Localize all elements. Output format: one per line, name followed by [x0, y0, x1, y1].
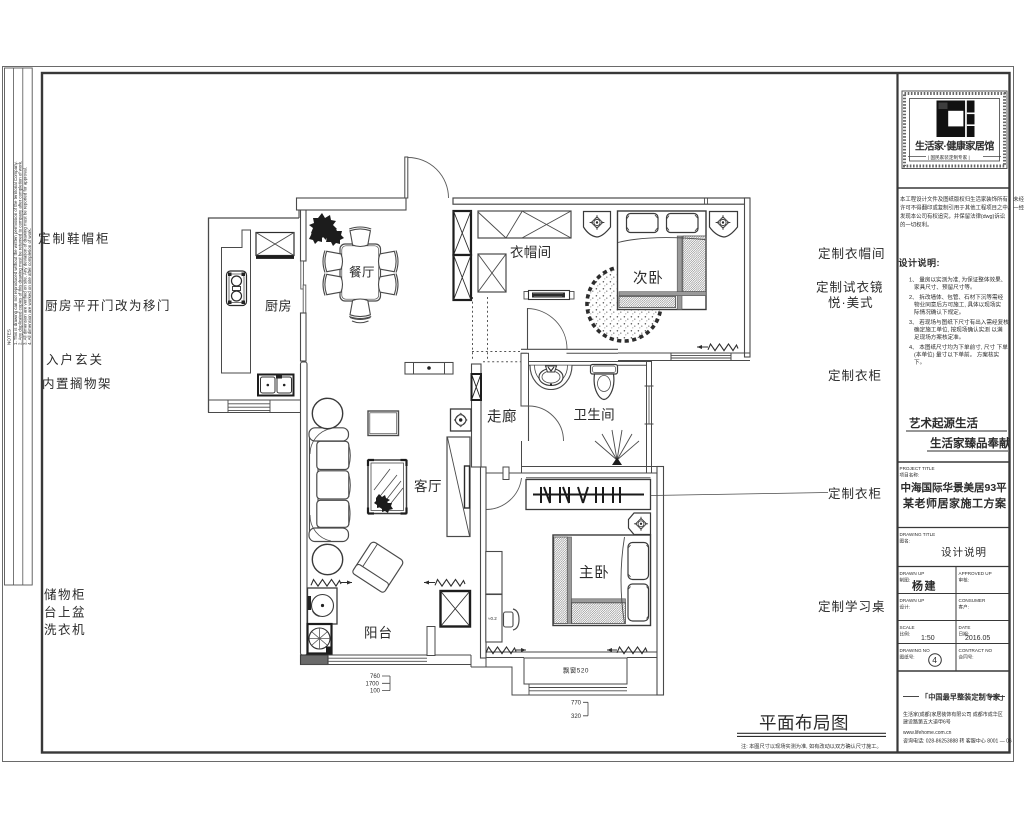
svg-text:咨询电话: 028-86253888 转 客服中心 8001: 咨询电话: 028-86253888 转 客服中心 8001 — 06 — [903, 738, 1012, 745]
svg-text:物业同意后方可施工, 具体以现场实: 物业同意后方可施工, 具体以现场实 — [914, 301, 1001, 309]
svg-text:制图:: 制图: — [900, 577, 910, 584]
svg-text:PROJECT TITLE: PROJECT TITLE — [900, 466, 935, 471]
svg-text:CONTRACT NO: CONTRACT NO — [959, 648, 993, 653]
svg-text:定制试衣镜: 定制试衣镜 — [816, 280, 884, 295]
svg-text:项目名称:: 项目名称: — [900, 472, 920, 479]
svg-text:确定施工单位, 按现场确认实测 以满: 确定施工单位, 按现场确认实测 以满 — [914, 326, 1003, 334]
svg-text:设计:: 设计: — [900, 604, 910, 611]
svg-text:图纸号:: 图纸号: — [900, 654, 915, 661]
svg-text:定制衣帽间: 定制衣帽间 — [818, 246, 886, 261]
svg-text:www.lifehome.com.cn: www.lifehome.com.cn — [903, 730, 952, 736]
svg-text:比例:: 比例: — [900, 631, 910, 638]
svg-text:际情况确认下规定。: 际情况确认下规定。 — [914, 308, 964, 316]
svg-text:定制学习桌: 定制学习桌 — [818, 599, 886, 614]
svg-text:中海国际华景美居93平: 中海国际华景美居93平 — [901, 481, 1008, 494]
svg-text:次卧: 次卧 — [633, 270, 664, 287]
svg-text:1:50: 1:50 — [921, 635, 935, 642]
svg-text:定制鞋帽柜: 定制鞋帽柜 — [38, 231, 111, 246]
svg-text:家具尺寸、预留尺寸等。: 家具尺寸、预留尺寸等。 — [914, 283, 976, 291]
svg-text:餐厅: 餐厅 — [349, 265, 375, 280]
svg-text:2、 拆改墙体、包管、石材下沉等需经: 2、 拆改墙体、包管、石材下沉等需经 — [909, 293, 1004, 301]
svg-text:DRAWING TITLE: DRAWING TITLE — [900, 532, 936, 537]
svg-text:1700: 1700 — [366, 681, 380, 687]
svg-text:设计说明:: 设计说明: — [899, 257, 941, 268]
svg-text:平面布局图: 平面布局图 — [759, 713, 849, 733]
svg-text:厨房: 厨房 — [265, 299, 292, 314]
svg-text:生活家(成都)家居装饰有限公司 成都市成华区: 生活家(成都)家居装饰有限公司 成都市成华区 — [903, 711, 1003, 718]
svg-text:足现场方案核定准。: 足现场方案核定准。 — [914, 333, 964, 341]
svg-text:定制衣柜: 定制衣柜 — [828, 486, 882, 501]
svg-text:衣帽间: 衣帽间 — [510, 245, 551, 260]
svg-text:图名:: 图名: — [900, 538, 910, 545]
svg-text:艺术起源生活: 艺术起源生活 — [909, 416, 978, 430]
svg-text:卫生间: 卫生间 — [574, 408, 615, 423]
svg-text:审核:: 审核: — [959, 577, 969, 584]
svg-text:760: 760 — [370, 674, 381, 680]
svg-text:本工程设计文件及图纸版权归生活家装饰所有，未经: 本工程设计文件及图纸版权归生活家装饰所有，未经 — [900, 195, 1024, 203]
svg-text:4: 4 — [932, 655, 937, 665]
svg-text:DRAWN UP: DRAWN UP — [900, 598, 925, 603]
svg-text:「中国最早整装定制专家」: 「中国最早整装定制专家」 — [921, 693, 1007, 702]
svg-text:1、 量房以实测为准, 为保证整体效果、: 1、 量房以实测为准, 为保证整体效果、 — [909, 276, 1006, 284]
svg-text:悦·美式: 悦·美式 — [828, 296, 874, 310]
svg-text:770: 770 — [571, 701, 582, 707]
svg-text:定制衣柜: 定制衣柜 — [828, 368, 882, 383]
svg-text:4、 本图纸尺寸均为下单前寸, 尺寸 下单: 4、 本图纸尺寸均为下单前寸, 尺寸 下单 — [909, 343, 1008, 351]
svg-text:客户:: 客户: — [959, 604, 969, 611]
svg-text:内置搁物架: 内置搁物架 — [42, 376, 112, 391]
svg-text:DRAWING NO: DRAWING NO — [900, 648, 931, 653]
svg-text:飘窗520: 飘窗520 — [563, 666, 589, 675]
svg-text:建设路第五大道甲6号: 建设路第五大道甲6号 — [903, 719, 951, 726]
svg-text:DRAWN UP: DRAWN UP — [900, 571, 925, 576]
svg-text:NOTES: NOTES — [7, 329, 12, 345]
svg-text:4. All dimension are worked on: 4. All dimension are worked on site afte… — [27, 228, 32, 345]
svg-text:320: 320 — [571, 714, 582, 720]
svg-text:杨建: 杨建 — [912, 579, 937, 593]
svg-text:生活家臻品奉献: 生活家臻品奉献 — [930, 436, 1011, 450]
svg-text:走廊: 走廊 — [487, 409, 517, 426]
svg-text:某老师居家施工方案: 某老师居家施工方案 — [902, 496, 1007, 510]
svg-text:SCALE: SCALE — [900, 625, 915, 630]
svg-text:洗衣机: 洗衣机 — [44, 622, 86, 637]
svg-text:设计说明: 设计说明 — [941, 546, 987, 559]
svg-text:许可不得翻印或复制引用于其他工程项目之中。一经: 许可不得翻印或复制引用于其他工程项目之中。一经 — [900, 204, 1024, 212]
svg-text:| 国民家装定制专家 |: | 国民家装定制专家 | — [928, 154, 970, 161]
svg-text:2016.05: 2016.05 — [965, 635, 990, 642]
svg-text:厨房平开门改为移门: 厨房平开门改为移门 — [45, 298, 171, 313]
svg-text:储物柜: 储物柜 — [44, 587, 86, 602]
svg-text:的一切权利。: 的一切权利。 — [900, 221, 932, 229]
svg-text:入户玄关: 入户玄关 — [46, 352, 104, 367]
svg-text:生活家·健康家居馆: 生活家·健康家居馆 — [915, 140, 994, 153]
svg-text:主卧: 主卧 — [579, 565, 610, 582]
svg-text:注: 本图尺寸以现场实测为准, 如有改动以双方确认尺寸施工。: 注: 本图尺寸以现场实测为准, 如有改动以双方确认尺寸施工。 — [741, 742, 882, 750]
svg-text:APPROVED UP: APPROVED UP — [959, 571, 992, 576]
svg-text:台上盆: 台上盆 — [44, 605, 86, 620]
svg-text:100: 100 — [370, 689, 381, 695]
svg-text:阳台: 阳台 — [364, 626, 393, 641]
svg-text:(本单位) 量寸以下单前。 方案核实: (本单位) 量寸以下单前。 方案核实 — [914, 351, 1000, 359]
svg-text:DATE: DATE — [959, 625, 971, 630]
svg-text:客厅: 客厅 — [414, 478, 442, 494]
svg-text:发现本公司有权追究，并保留法律(dwg)诉讼: 发现本公司有权追究，并保留法律(dwg)诉讼 — [900, 212, 1006, 220]
svg-text:≈0.2: ≈0.2 — [488, 616, 497, 621]
svg-text:3、 若现场与图纸下尺寸有出入需经复核: 3、 若现场与图纸下尺寸有出入需经复核 — [909, 318, 1009, 326]
svg-text:下。: 下。 — [914, 359, 925, 366]
svg-text:CONSUMER: CONSUMER — [959, 598, 986, 603]
svg-text:合同号:: 合同号: — [959, 654, 974, 661]
